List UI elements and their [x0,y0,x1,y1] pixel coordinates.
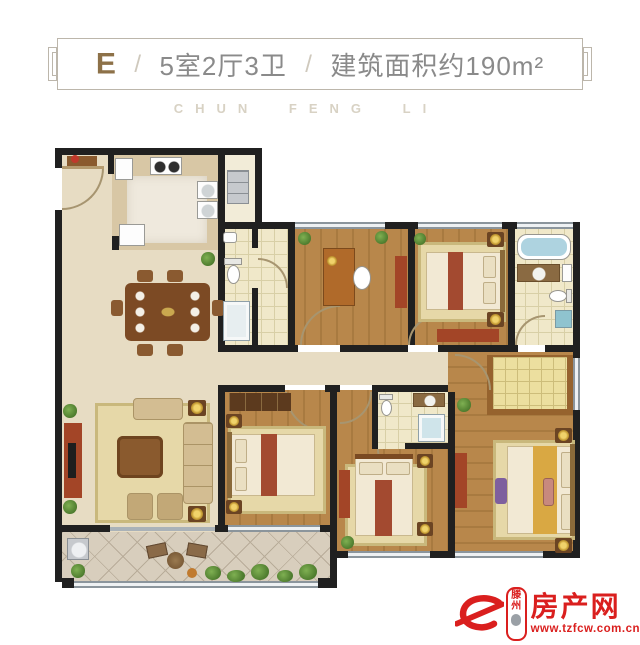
bathtub-water [521,238,567,256]
desk-lamp [327,256,337,266]
bench [543,478,554,506]
plant [71,564,85,578]
plant [205,566,221,580]
wall [330,551,348,558]
wall [218,385,285,392]
bed-runner [375,480,392,536]
plant [227,570,245,582]
plant [201,252,215,266]
wall [252,288,258,348]
bookshelf [395,256,407,308]
dining-chair [111,300,123,316]
loveseat [133,398,183,420]
vanity [517,264,560,282]
wall [372,390,378,449]
dining-chair [167,344,183,356]
coffee-table [117,436,163,478]
wall [430,551,455,558]
wall [508,228,515,345]
wall [545,345,580,352]
dining-table [125,283,210,341]
bed-runner [448,252,463,310]
logo-name: 房产网 [531,593,640,621]
wall [112,236,119,250]
area-label: 建筑面积约190m² [330,51,544,81]
nightstand-lamp [229,502,239,512]
wall [372,385,448,392]
dresser [455,453,467,508]
window [573,358,580,410]
kitchen-sink [197,181,218,199]
unit-label: E [96,48,116,81]
wall [55,210,62,582]
wall [215,525,228,532]
wall [62,525,110,532]
wall [255,148,262,229]
wall [108,148,114,174]
wardrobe [229,393,291,411]
page-title: E / 5室2厅3卫 / 建筑面积约190m² [0,46,640,83]
vanity [413,393,445,407]
window [348,551,430,558]
sofa [183,422,213,504]
stone-pad [67,538,89,560]
flower-pot [187,568,197,578]
nightstand-lamp [229,416,239,426]
toilet [227,265,240,284]
desk-chair [353,266,371,290]
separator: / [305,51,312,78]
pillow [235,439,247,463]
dresser [437,329,499,342]
toilet [549,290,567,302]
wall [288,228,295,345]
kitchen-sink [197,201,218,219]
bed-runner [261,434,277,496]
pillow [483,282,496,304]
armchair [127,493,153,520]
window [295,222,385,229]
flower-pot [71,155,79,163]
bath-cabinet [562,264,572,282]
window [517,222,573,229]
pin-cap [511,614,521,626]
pillow [483,256,496,278]
plant [414,233,426,245]
throw-blanket [495,478,507,504]
armchair [157,493,183,520]
entry-door-panel [62,166,104,169]
city-pin: 滕州 [506,587,527,641]
city-label: 滕州 [510,591,522,612]
site-logo: 滕州 房产网 www.tzfcw.com.cn [455,586,640,642]
floor-plan [55,148,590,596]
refrigerator [227,170,249,204]
plant [63,500,77,514]
plant [277,570,293,582]
dining-chair [167,270,183,282]
kitchen-cabinet [119,224,145,246]
wall [62,578,74,588]
pillow [235,467,247,491]
nightstand-lamp [490,314,501,325]
wall [318,578,330,588]
nightstand-lamp [420,456,430,466]
plant [298,232,311,245]
window [228,525,320,532]
toilet [381,400,392,416]
logo-url: www.tzfcw.com.cn [531,624,640,636]
wall [438,345,518,352]
shower [418,414,445,442]
headboard [355,454,413,459]
side-table-lamp [191,508,203,520]
cutting-board [115,158,133,180]
wall [320,525,330,532]
window [455,551,543,558]
tzfcw-e-logo-icon [455,589,504,639]
pillow [386,462,410,475]
toilet [224,258,242,265]
headboard [570,444,575,536]
hallway-floor [222,352,448,385]
window [418,222,502,229]
watermark: CHUN FENG LI [0,101,612,116]
wall [218,385,225,532]
nightstand-lamp [558,540,569,551]
wall [448,392,455,558]
plant [341,536,354,549]
stove [150,157,182,175]
headboard [500,250,505,312]
plant [457,398,471,412]
headboard [227,432,232,498]
dining-chair [137,344,153,356]
layout-label: 5室2厅3卫 [159,51,286,81]
wall [218,345,298,352]
side-table-lamp [191,402,203,414]
balcony-table [167,552,184,569]
dresser [339,470,350,518]
shower [223,301,250,341]
plant [375,231,388,244]
washbasin [223,232,237,243]
nightstand-lamp [490,234,501,245]
separator: / [134,51,141,78]
plant [63,404,77,418]
pillow [359,462,383,475]
tv [68,443,76,478]
plant [251,564,269,580]
nightstand-lamp [558,430,569,441]
wall [405,443,448,449]
washing-machine [555,310,572,328]
plant [299,564,317,580]
sliding-door [110,527,215,531]
tatami-bay [487,355,573,415]
dining-chair [137,270,153,282]
balcony-railing [62,581,330,588]
wall [340,345,408,352]
wall [252,228,258,248]
nightstand-lamp [420,524,430,534]
wall [55,148,262,155]
